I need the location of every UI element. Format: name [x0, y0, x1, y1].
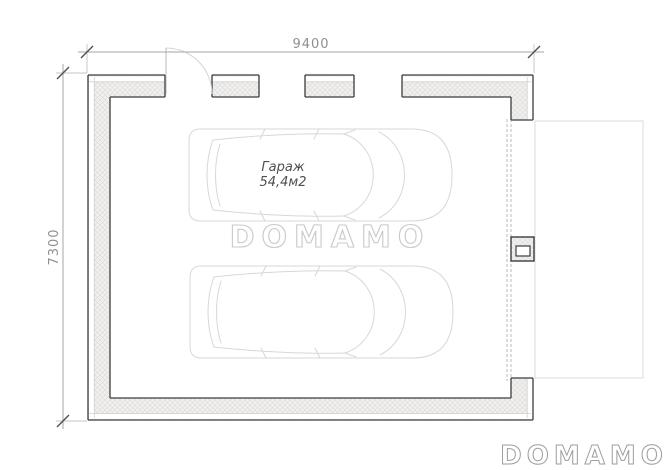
dimension-left-value: 7300	[47, 228, 62, 265]
floor-plan-drawing: Гараж 54,4м2 9400 7300 DOMAMO DOMAMO	[0, 0, 665, 470]
watermark-center: DOMAMO	[230, 220, 431, 255]
room-area-text: 54,4м2	[259, 175, 306, 190]
room-name-text: Гараж	[261, 160, 304, 175]
watermark-bottom-right: DOMAMO	[500, 441, 665, 470]
dimension-top-value: 9400	[292, 37, 329, 52]
floor-plan-page: Гараж 54,4м2 9400 7300 DOMAMO DOMAMO	[0, 0, 665, 470]
garage-door-pier	[511, 237, 534, 261]
room-label: Гараж 54,4м2	[259, 160, 306, 190]
driveway-apron	[535, 121, 643, 378]
